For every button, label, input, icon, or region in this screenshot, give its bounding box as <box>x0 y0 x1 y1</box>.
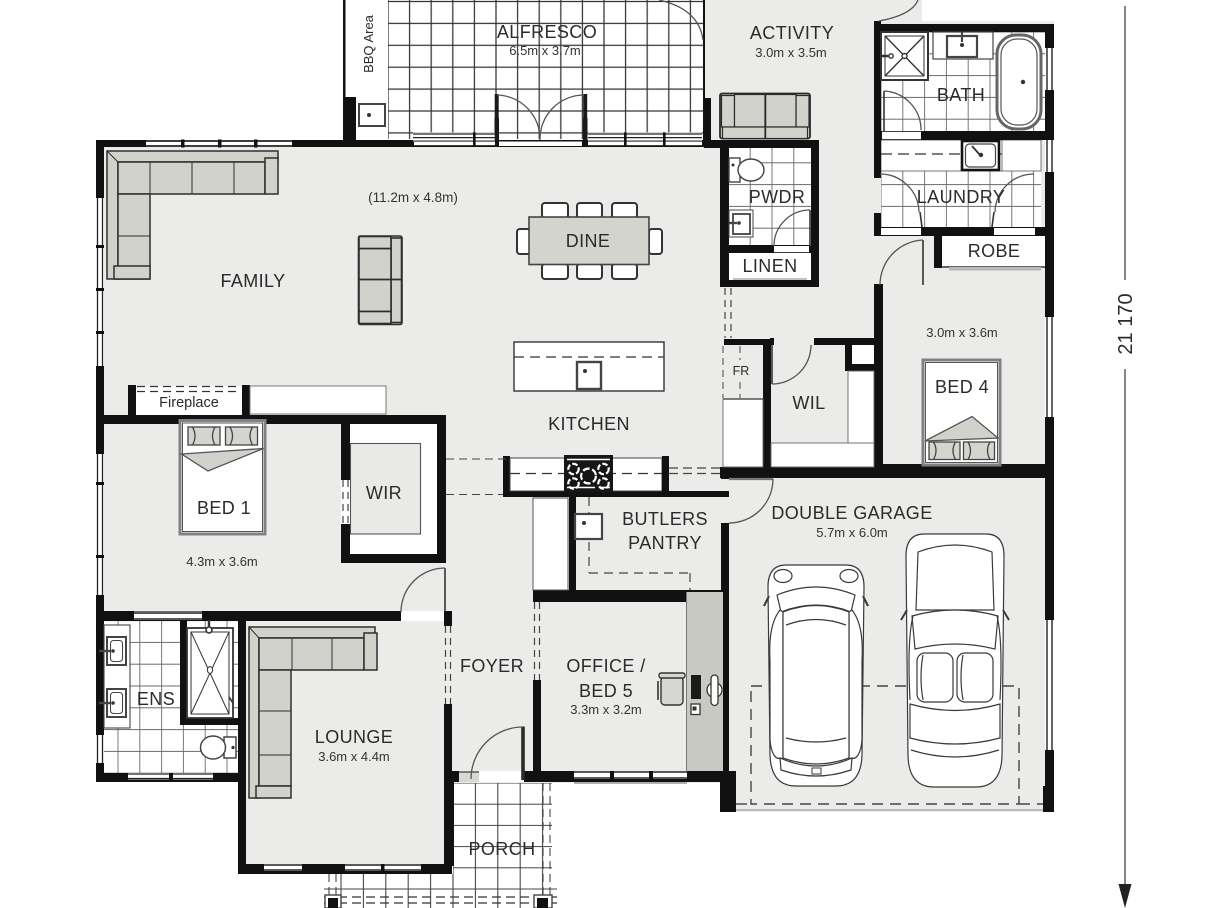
svg-text:Fireplace: Fireplace <box>159 395 219 411</box>
svg-text:3.0m x 3.5m: 3.0m x 3.5m <box>755 45 827 60</box>
svg-text:WIR: WIR <box>366 483 402 503</box>
svg-text:FR: FR <box>733 364 750 378</box>
svg-text:FOYER: FOYER <box>460 656 524 676</box>
svg-text:3.3m x 3.2m: 3.3m x 3.2m <box>570 702 642 717</box>
svg-text:DINE: DINE <box>566 231 611 251</box>
svg-text:PANTRY: PANTRY <box>628 533 702 553</box>
svg-text:FAMILY: FAMILY <box>220 271 285 291</box>
svg-text:(11.2m x 4.8m): (11.2m x 4.8m) <box>368 190 458 205</box>
svg-text:PWDR: PWDR <box>749 187 806 207</box>
svg-text:PORCH: PORCH <box>468 839 535 859</box>
svg-text:ENS: ENS <box>137 689 175 709</box>
svg-text:BATH: BATH <box>937 85 985 105</box>
svg-text:BED 1: BED 1 <box>197 498 251 518</box>
svg-text:BED 5: BED 5 <box>579 681 633 701</box>
svg-text:DOUBLE GARAGE: DOUBLE GARAGE <box>771 503 932 523</box>
svg-text:6.5m x 3.7m: 6.5m x 3.7m <box>509 43 581 58</box>
svg-text:ROBE: ROBE <box>968 241 1021 261</box>
svg-text:ALFRESCO: ALFRESCO <box>497 22 597 42</box>
svg-text:LOUNGE: LOUNGE <box>315 727 393 747</box>
svg-text:5.7m x 6.0m: 5.7m x 6.0m <box>816 525 888 540</box>
svg-text:KITCHEN: KITCHEN <box>548 414 630 434</box>
svg-text:3.0m x 3.6m: 3.0m x 3.6m <box>926 325 998 340</box>
svg-text:LINEN: LINEN <box>742 256 797 276</box>
svg-text:LAUNDRY: LAUNDRY <box>917 187 1006 207</box>
svg-text:WIL: WIL <box>792 393 825 413</box>
svg-text:ACTIVITY: ACTIVITY <box>750 23 834 43</box>
svg-text:3.6m x 4.4m: 3.6m x 4.4m <box>318 749 390 764</box>
svg-text:OFFICE /: OFFICE / <box>566 656 645 676</box>
svg-text:4.3m x 3.6m: 4.3m x 3.6m <box>186 554 258 569</box>
svg-text:BBQ Area: BBQ Area <box>361 14 376 73</box>
svg-text:BUTLERS: BUTLERS <box>622 509 708 529</box>
svg-text:BED 4: BED 4 <box>935 377 989 397</box>
svg-text:21 170: 21 170 <box>1115 293 1137 354</box>
